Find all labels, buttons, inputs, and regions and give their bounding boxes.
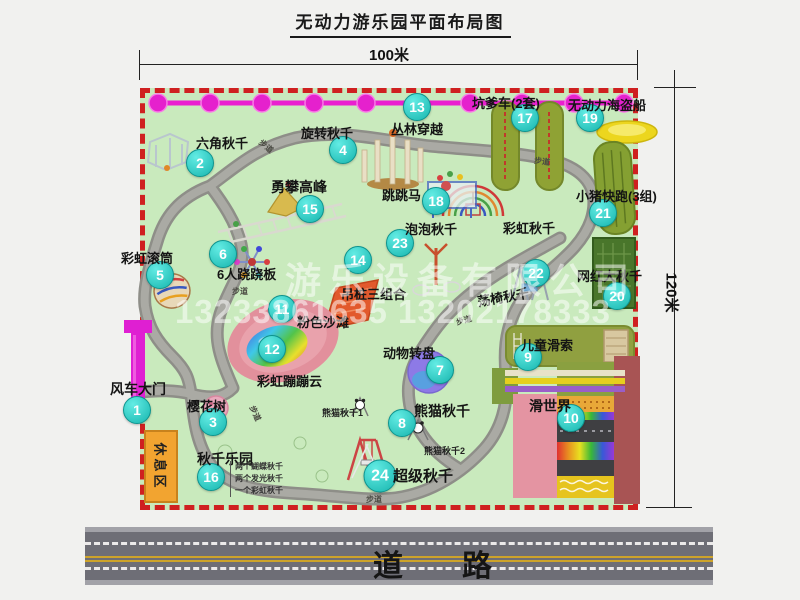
badge-1[interactable]: 1 — [123, 396, 151, 424]
label-kids-zipline: 儿童滑索 — [521, 335, 573, 354]
label-piggy-run: 小猪快跑(3组) — [576, 186, 657, 205]
swing-park-detail-1: 两个蝴蝶秋千 — [235, 461, 283, 473]
trail-label-5: 步道 — [366, 494, 382, 505]
rest-area: 休息区 — [144, 430, 178, 503]
swing-park-detail-2: 两个发光秋千 — [235, 473, 283, 485]
badge-13[interactable]: 13 — [403, 93, 431, 121]
label-climbing-peak: 勇攀高峰 — [271, 177, 327, 197]
label-net-swing: 网红大秋千 — [577, 266, 642, 285]
trail-label-2: 步道 — [533, 155, 550, 168]
badge-8[interactable]: 8 — [388, 409, 416, 437]
label-panda-swing-2: 熊猫秋千2 — [424, 444, 465, 457]
label-pink-beach: 粉色沙滩 — [297, 312, 349, 331]
label-panda-swing-1: 熊猫秋千1 — [322, 406, 363, 419]
label-jungle-crossing: 丛林穿越 — [391, 119, 443, 138]
label-super-swing: 超级秋千 — [393, 465, 453, 486]
label-six-seesaw: 6人跷跷板 — [217, 264, 276, 283]
road: 道路 — [85, 527, 713, 585]
road-label: 道路 — [373, 541, 551, 585]
page-title: 无动力游乐园平面布局图 — [290, 8, 511, 38]
badge-24[interactable]: 24 — [364, 460, 397, 493]
playground-map-page: 无动力游乐园平面布局图 100米 120米 — [0, 0, 800, 600]
badge-20[interactable]: 20 — [603, 282, 631, 310]
label-windmill-gate: 风车大门 — [110, 379, 166, 399]
label-hanging-piles: 吊桩三组合 — [341, 284, 406, 303]
height-dimension-label: 120米 — [662, 272, 683, 312]
label-jumping-horse: 跳跳马 — [382, 185, 421, 204]
width-dimension-line — [140, 64, 638, 65]
label-rotating-swing: 旋转秋千 — [301, 123, 353, 142]
swing-park-details: 两个蝴蝶秋千 两个发光秋千 一个彩虹秋千 — [230, 461, 283, 497]
trail-label-3: 步道 — [232, 286, 248, 297]
width-dim-tick-left — [139, 50, 140, 80]
badge-11[interactable]: 11 — [268, 295, 296, 323]
label-hexagon-swing: 六角秋千 — [196, 133, 248, 152]
badge-18[interactable]: 18 — [422, 187, 450, 215]
height-dim-tick-bottom — [646, 507, 692, 508]
width-dim-tick-right — [637, 50, 638, 80]
badge-15[interactable]: 15 — [296, 195, 324, 223]
label-animal-carousel: 动物转盘 — [383, 343, 435, 362]
label-rainbow-roller: 彩虹滚筒 — [121, 248, 173, 267]
width-dimension-label: 100米 — [140, 44, 638, 65]
swing-park-detail-3: 一个彩虹秋千 — [235, 485, 283, 497]
label-kengdie-car: 坑爹车(2套) — [472, 93, 540, 112]
title-bar: 无动力游乐园平面布局图 — [0, 8, 800, 38]
height-dim-tick-top — [654, 87, 696, 88]
label-bubble-swing: 泡泡秋千 — [405, 219, 457, 238]
label-rainbow-swing: 彩虹秋千 — [503, 218, 555, 237]
badge-12[interactable]: 12 — [258, 335, 286, 363]
badge-2[interactable]: 2 — [186, 149, 214, 177]
label-pirate-ship: 无动力海盗船 — [568, 95, 646, 114]
rest-area-label: 休息区 — [152, 442, 171, 490]
label-panda-swing: 熊猫秋千 — [414, 401, 470, 421]
label-rainbow-cloud: 彩虹蹦蹦云 — [257, 371, 322, 390]
label-cherry-tree: 樱花树 — [187, 396, 226, 415]
label-slide-world: 滑世界 — [529, 396, 571, 416]
badge-14[interactable]: 14 — [344, 246, 372, 274]
